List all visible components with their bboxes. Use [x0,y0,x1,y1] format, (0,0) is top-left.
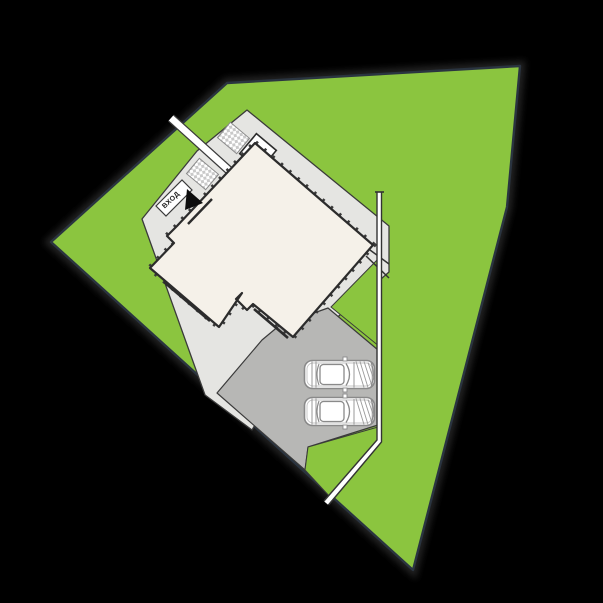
site-plan-drawing: ВХОД [0,0,603,603]
site-plan: ВХОД [0,0,603,603]
car-1 [305,357,375,392]
car-2 [305,394,375,429]
